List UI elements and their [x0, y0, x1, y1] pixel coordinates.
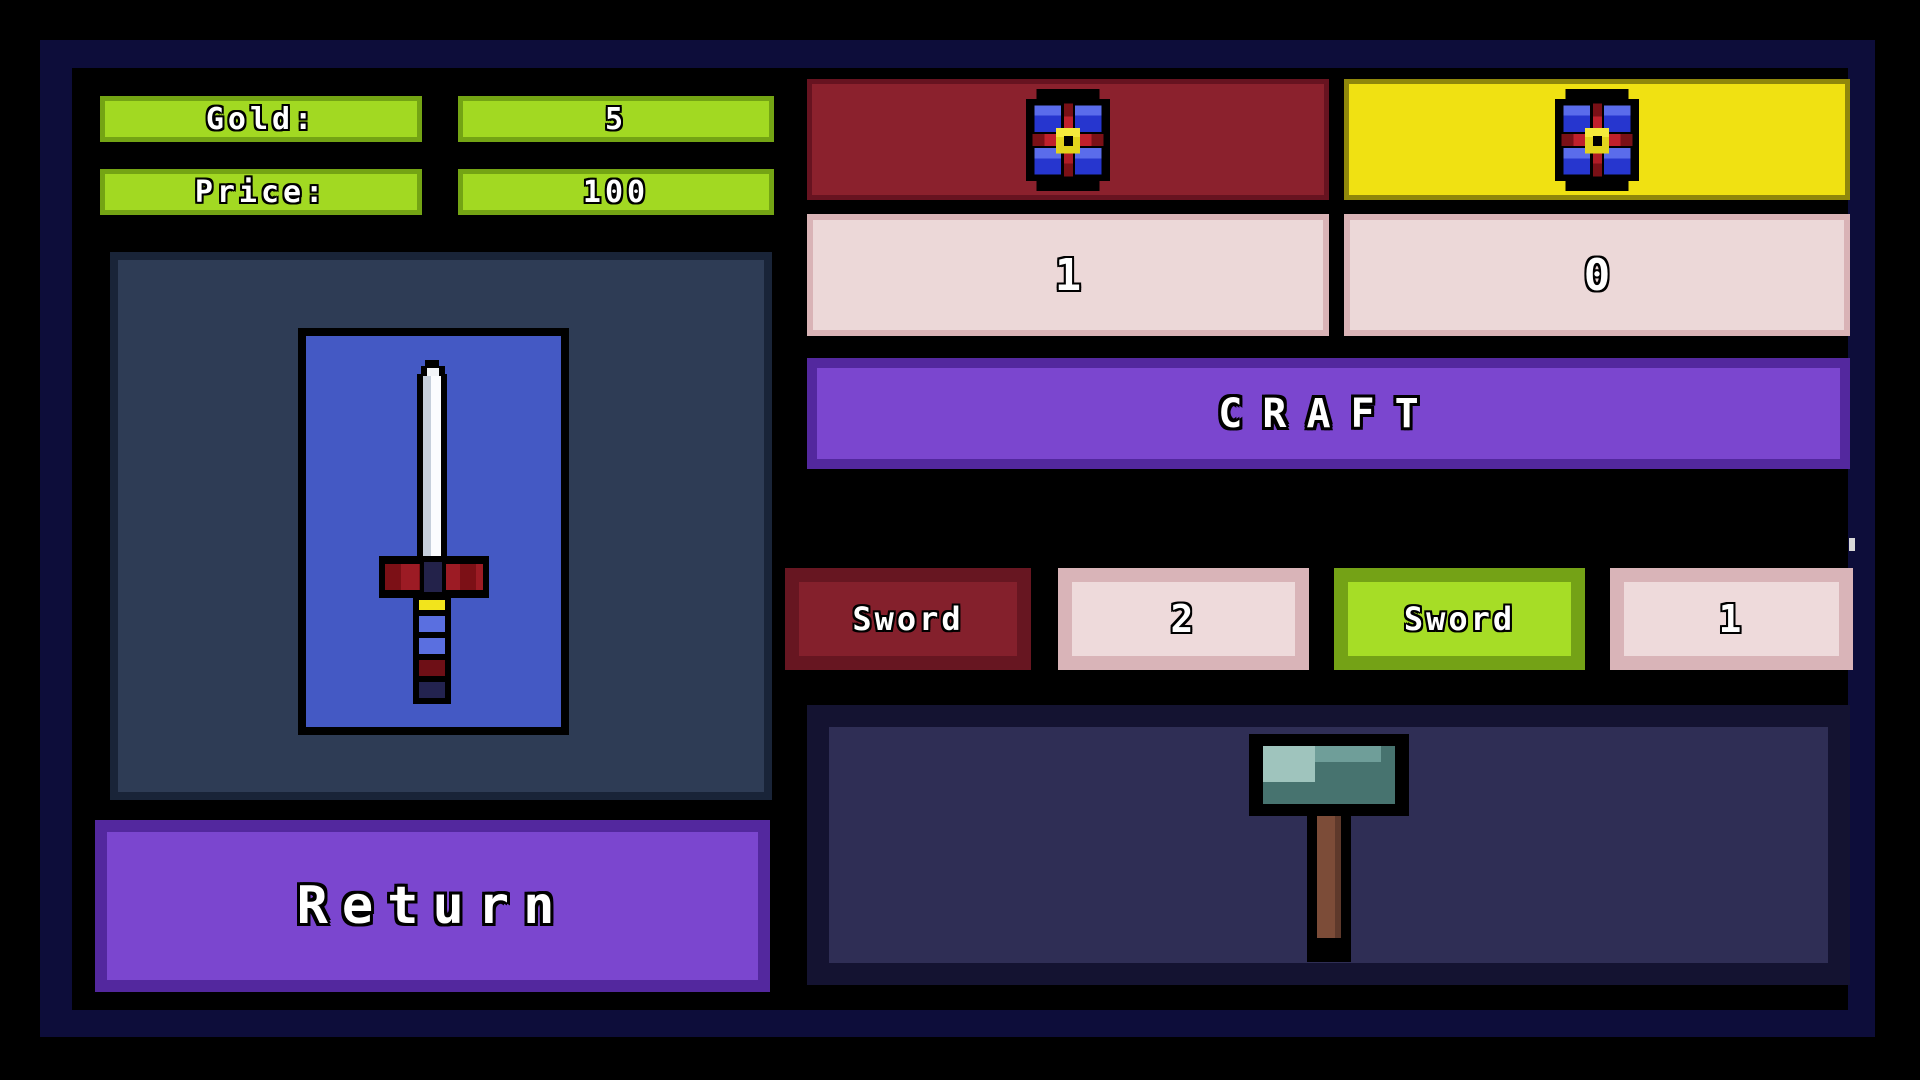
recipe-sword-red-count-value: 2 [1171, 597, 1197, 641]
gold-value-box: 5 [458, 96, 774, 142]
recipe-sword-green-label[interactable]: Sword [1334, 568, 1585, 670]
recipe-sword-red-count: 2 [1058, 568, 1309, 670]
recipe-sword-red-text: Sword [852, 600, 963, 638]
ingredient-count-yellow: 0 [1344, 214, 1850, 336]
recipe-sword-green-text: Sword [1404, 600, 1515, 638]
recipe-sword-red-label[interactable]: Sword [785, 568, 1031, 670]
craft-screen: Gold: 5 Price: 100 [0, 0, 1920, 1080]
ingredient-slot-red[interactable] [807, 79, 1329, 200]
item-card [298, 328, 569, 735]
gold-label: Gold: [206, 102, 316, 137]
frame-notch [1849, 538, 1855, 551]
price-label-box: Price: [100, 169, 422, 215]
ingredient-slot-yellow[interactable] [1344, 79, 1850, 200]
price-value-box: 100 [458, 169, 774, 215]
gold-label-box: Gold: [100, 96, 422, 142]
craft-button[interactable]: CRAFT [807, 358, 1850, 469]
price-value: 100 [583, 175, 649, 210]
craft-button-label: CRAFT [1218, 391, 1438, 437]
return-button-label: Return [297, 876, 569, 936]
return-button[interactable]: Return [95, 820, 770, 992]
result-panel-inner [829, 727, 1828, 963]
result-panel [807, 705, 1850, 985]
price-label: Price: [195, 175, 327, 210]
flower-icon [1022, 89, 1114, 191]
flower-icon [1551, 89, 1643, 191]
ingredient-count-red: 1 [807, 214, 1329, 336]
ingredient-count-red-value: 1 [1055, 250, 1082, 301]
sword-icon [369, 360, 499, 704]
ingredient-count-yellow-value: 0 [1584, 250, 1611, 301]
gold-value: 5 [605, 102, 627, 137]
recipe-sword-green-count: 1 [1610, 568, 1853, 670]
hammer-icon [1249, 734, 1409, 962]
recipe-sword-green-count-value: 1 [1719, 597, 1745, 641]
